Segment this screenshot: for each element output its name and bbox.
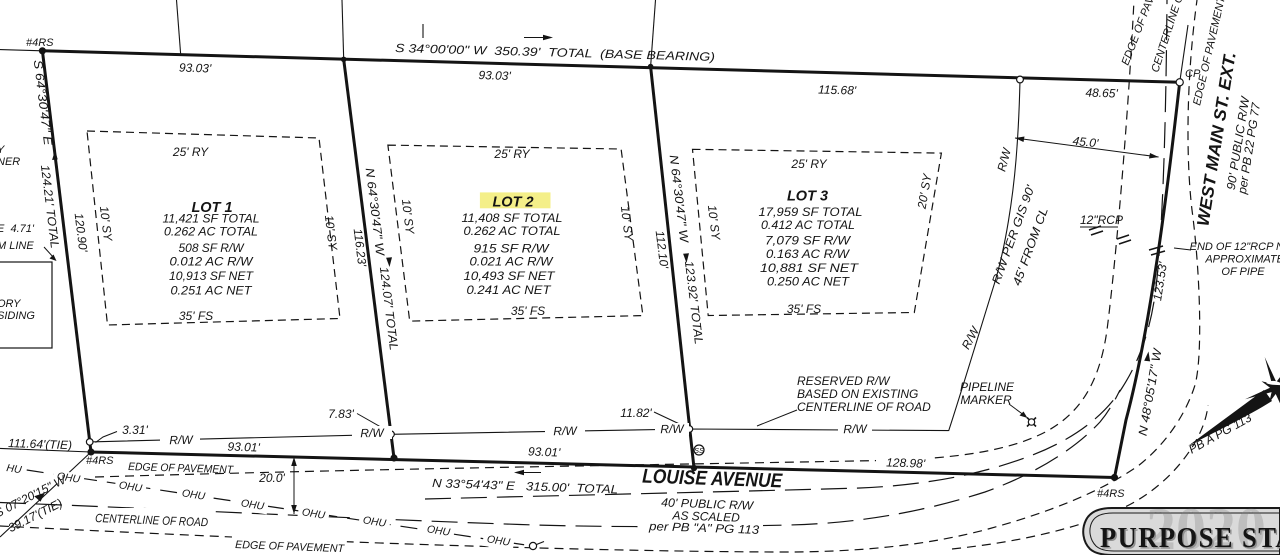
svg-text:48.65': 48.65' <box>1085 86 1118 101</box>
svg-text:35' FS: 35' FS <box>511 304 545 318</box>
svg-text:NER: NER <box>0 156 20 168</box>
svg-text:11,408 SF TOTAL: 11,408 SF TOTAL <box>462 211 563 225</box>
svg-text:35' FS: 35' FS <box>787 302 821 316</box>
svg-text:128.98': 128.98' <box>886 455 926 470</box>
svg-text:508 SF R/W: 508 SF R/W <box>179 241 246 255</box>
svg-text:MARKER: MARKER <box>960 393 1012 407</box>
svg-text:ORY: ORY <box>0 298 21 310</box>
svg-text:LOT 2: LOT 2 <box>492 195 533 211</box>
svg-text:#4RS: #4RS <box>1097 488 1125 500</box>
svg-text:R/W: R/W <box>843 422 868 436</box>
svg-text:BASED ON EXISTING: BASED ON EXISTING <box>797 387 918 401</box>
svg-text:0.412 AC TOTAL: 0.412 AC TOTAL <box>761 218 855 232</box>
svg-text:RESERVED R/W: RESERVED R/W <box>797 374 891 388</box>
svg-text:HU: HU <box>6 462 23 476</box>
svg-text:111.64'(TIE): 111.64'(TIE) <box>8 436 72 452</box>
svg-text:10,913 SF NET: 10,913 SF NET <box>169 269 255 283</box>
svg-text:END OF 12"RCP N: END OF 12"RCP N <box>1190 241 1280 253</box>
svg-text:0.012 AC R/W: 0.012 AC R/W <box>170 255 255 269</box>
svg-text:0.163 AC R/W: 0.163 AC R/W <box>766 247 851 261</box>
svg-text:0.250 AC NET: 0.250 AC NET <box>767 275 851 289</box>
svg-text:PIPELINE: PIPELINE <box>960 380 1015 394</box>
svg-text:93.01': 93.01' <box>528 444 561 459</box>
svg-text:93.01': 93.01' <box>227 439 260 454</box>
svg-text:SIDING: SIDING <box>0 310 35 322</box>
svg-text:12"RCP: 12"RCP <box>1080 213 1123 227</box>
svg-text:25' RY: 25' RY <box>790 157 827 171</box>
svg-text:0.262 AC TOTAL: 0.262 AC TOTAL <box>164 225 258 239</box>
svg-text:7.83': 7.83' <box>328 407 354 421</box>
svg-text:3.31': 3.31' <box>122 423 148 437</box>
svg-text:10,881 SF NET: 10,881 SF NET <box>760 261 860 275</box>
svg-text:OF PIPE: OF PIPE <box>1221 266 1265 278</box>
svg-text:#4RS: #4RS <box>26 37 54 49</box>
svg-text:PURPOSE STA: PURPOSE STA <box>1100 523 1280 554</box>
svg-text:M LINE: M LINE <box>0 240 34 252</box>
svg-text:Y: Y <box>0 144 5 156</box>
svg-text:0.241 AC NET: 0.241 AC NET <box>467 283 553 297</box>
svg-text:35' FS: 35' FS <box>179 309 213 323</box>
svg-text:LOT 3: LOT 3 <box>787 189 828 205</box>
svg-text:R/W: R/W <box>169 433 194 447</box>
svg-text:R/W: R/W <box>553 424 578 438</box>
svg-text:R/W: R/W <box>360 426 385 440</box>
svg-text:11.82': 11.82' <box>620 406 652 420</box>
svg-text:10,493 SF NET: 10,493 SF NET <box>464 269 557 283</box>
svg-text:SS: SS <box>694 446 704 455</box>
svg-text:#4RS: #4RS <box>86 455 114 467</box>
svg-text:0.262 AC TOTAL: 0.262 AC TOTAL <box>464 224 561 238</box>
svg-text:17,959 SF TOTAL: 17,959 SF TOTAL <box>759 205 863 219</box>
svg-text:93.03': 93.03' <box>478 68 511 83</box>
svg-text:915 SF R/W: 915 SF R/W <box>474 242 551 256</box>
svg-text:115.68': 115.68' <box>818 82 857 97</box>
svg-text:E 4.71': E 4.71' <box>0 223 35 235</box>
svg-text:APPROXIMATE: APPROXIMATE <box>1204 254 1280 266</box>
svg-text:CENTERLINE OF ROAD: CENTERLINE OF ROAD <box>797 400 931 414</box>
svg-text:11,421 SF TOTAL: 11,421 SF TOTAL <box>163 212 260 226</box>
svg-text:25' RY: 25' RY <box>172 145 209 159</box>
svg-text:93.03': 93.03' <box>179 61 212 76</box>
svg-text:0.021 AC R/W: 0.021 AC R/W <box>470 255 555 269</box>
svg-text:20.0': 20.0' <box>258 471 285 485</box>
svg-text:0.251 AC NET: 0.251 AC NET <box>171 284 254 298</box>
svg-text:R/W: R/W <box>660 422 685 436</box>
svg-text:25' RY: 25' RY <box>493 147 530 161</box>
svg-text:7,079 SF R/W: 7,079 SF R/W <box>765 234 852 248</box>
svg-text:45.0': 45.0' <box>1072 134 1100 151</box>
